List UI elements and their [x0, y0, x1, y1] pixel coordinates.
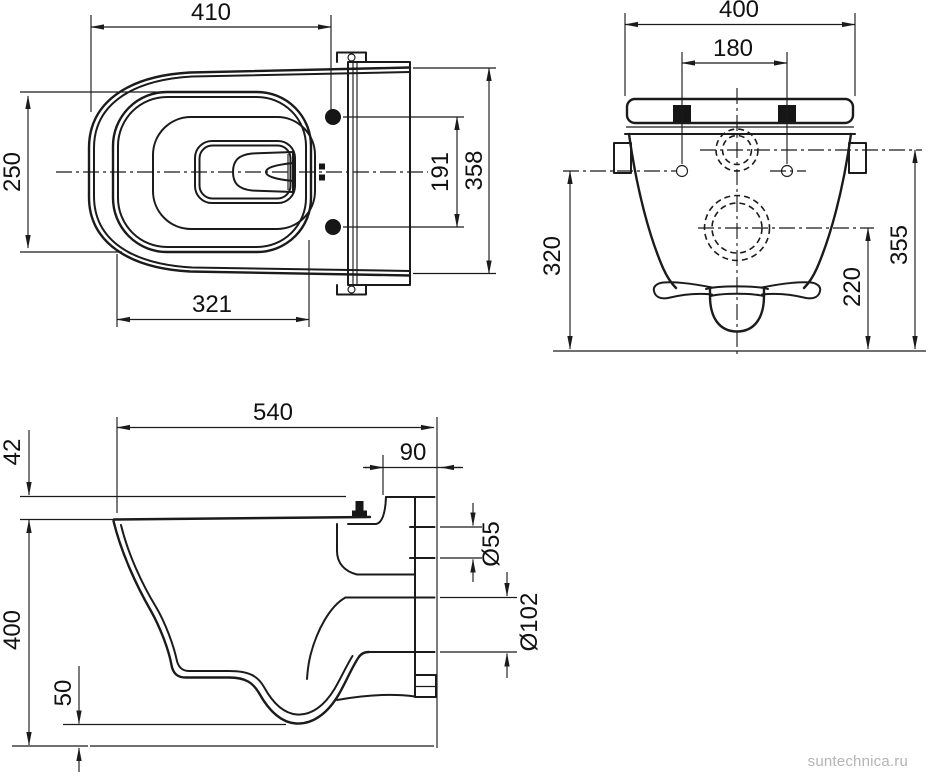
fixing-bolt-bottom	[325, 219, 341, 235]
dim-side-outlet-diameter: Ø102	[440, 572, 543, 678]
bowl-rear-wall	[337, 524, 415, 575]
dim-top-overall-length: 410	[91, 0, 331, 112]
dim-side-overall-height: 400	[0, 520, 88, 746]
fixing-bolt-top	[325, 109, 341, 125]
rear-body-right-edge	[804, 134, 851, 288]
outlet-wing-left	[654, 282, 712, 298]
spigot-underside	[337, 695, 415, 700]
dim-label-d102: Ø102	[516, 593, 543, 652]
seat-hinge-bolt	[356, 501, 364, 511]
dim-label-d55: Ø55	[478, 521, 505, 566]
dim-label-321: 321	[192, 291, 232, 318]
side-view: 540 42 400 50 90	[0, 399, 543, 772]
dim-label-358: 358	[461, 150, 488, 190]
plate-tab-bottom-hole	[348, 286, 355, 293]
technical-drawing-canvas: 410 250 321 191 358	[0, 0, 928, 776]
side-lug-right	[849, 143, 866, 173]
rear-body-left-edge	[629, 134, 676, 288]
dim-label-191: 191	[427, 152, 454, 192]
fixing-hole-left	[677, 166, 688, 177]
dim-side-inlet-diameter: Ø55	[440, 503, 505, 582]
trap-weir	[307, 598, 346, 680]
seat-profile	[114, 517, 370, 520]
dim-label-42: 42	[0, 439, 26, 466]
dim-side-rear-recess: 90	[363, 439, 463, 495]
seat-lid	[627, 99, 853, 123]
dim-rear-fixing-hole-height: 320	[539, 171, 570, 349]
dim-rear-inlet-height: 355	[886, 150, 915, 349]
dim-label-220: 220	[839, 267, 866, 307]
dim-label-50: 50	[50, 680, 77, 707]
dim-side-overall-depth: 540	[117, 399, 434, 513]
dim-label-400-rear: 400	[719, 0, 759, 23]
dim-label-90: 90	[400, 439, 427, 466]
plate-tab-top-hole	[348, 54, 355, 61]
dim-label-180: 180	[713, 35, 753, 62]
dim-label-250: 250	[0, 152, 26, 192]
dim-label-355: 355	[886, 225, 913, 265]
side-lug-left	[614, 143, 631, 173]
rear-view: 400 180 320 220 355	[539, 0, 926, 358]
top-view: 410 250 321 191 358	[0, 0, 496, 327]
dim-top-seat-opening-width: 250	[0, 92, 160, 252]
dim-top-overall-width: 358	[413, 68, 496, 274]
outlet-wing-right	[762, 282, 820, 298]
dim-label-540: 540	[253, 399, 293, 426]
drawing-svg: 410 250 321 191 358	[0, 0, 928, 776]
center-fitting-mark	[319, 164, 325, 170]
dim-side-seat-step: 42	[0, 430, 346, 520]
dim-label-400-side: 400	[0, 610, 26, 650]
dim-label-410: 410	[191, 0, 231, 26]
watermark: suntechnica.ru	[808, 753, 908, 770]
dim-label-320: 320	[539, 236, 566, 276]
dim-rear-outlet-height: 220	[839, 228, 868, 349]
